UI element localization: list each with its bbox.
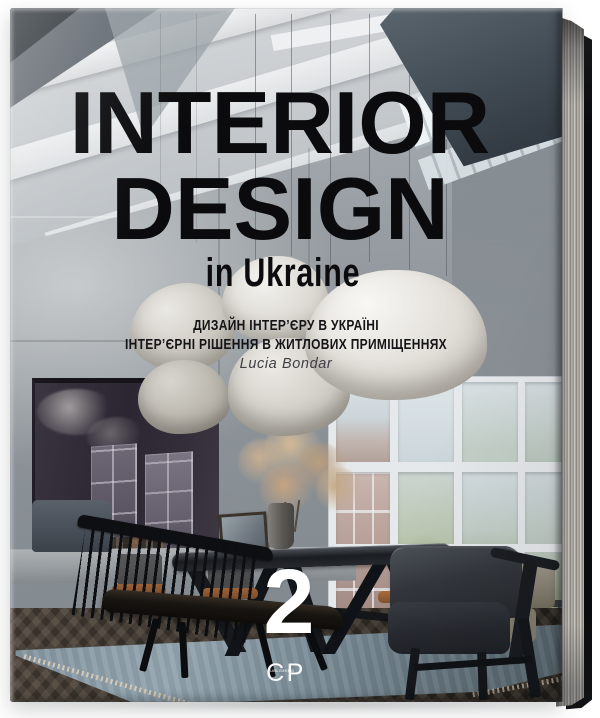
tagline-line-1: ДИЗАЙН ІНТЕР’ЄРУ В УКРАЇНІ [65,316,507,335]
window-pane [462,382,518,462]
flower-cluster [316,467,360,513]
tagline-line-2: ІНТЕР’ЄРНІ РІШЕННЯ В ЖИТЛОВИХ ПРИМІЩЕННЯ… [65,335,507,354]
cover-photo: INTERIOR DESIGN in Ukraine ДИЗАЙН ІНТЕР’… [10,8,562,702]
cover-edge-shade [554,8,562,702]
title-line-2: DESIGN [10,166,556,252]
volume-number: 2 [13,556,562,648]
front-cover: INTERIOR DESIGN in Ukraine ДИЗАЙН ІНТЕР’… [10,8,562,702]
dried-flower-bouquet [238,423,362,535]
book-tagline: ДИЗАЙН ІНТЕР’ЄРУ В УКРАЇНІ ІНТЕР’ЄРНІ РІ… [65,316,507,354]
author-name: Lucia Bondar [10,356,562,372]
vase [268,503,294,549]
publisher-logo-text: CP [266,659,306,687]
book-subtitle: in Ukraine [73,251,493,296]
book-mockup: INTERIOR DESIGN in Ukraine ДИЗАЙН ІНТЕР’… [0,0,600,718]
publisher-logo-subtext: PUBLISHING [267,668,294,673]
book-title: INTERIOR DESIGN [10,80,556,252]
publisher-logo: CP PUBLISHING [10,659,562,688]
title-line-1: INTERIOR [10,80,556,166]
